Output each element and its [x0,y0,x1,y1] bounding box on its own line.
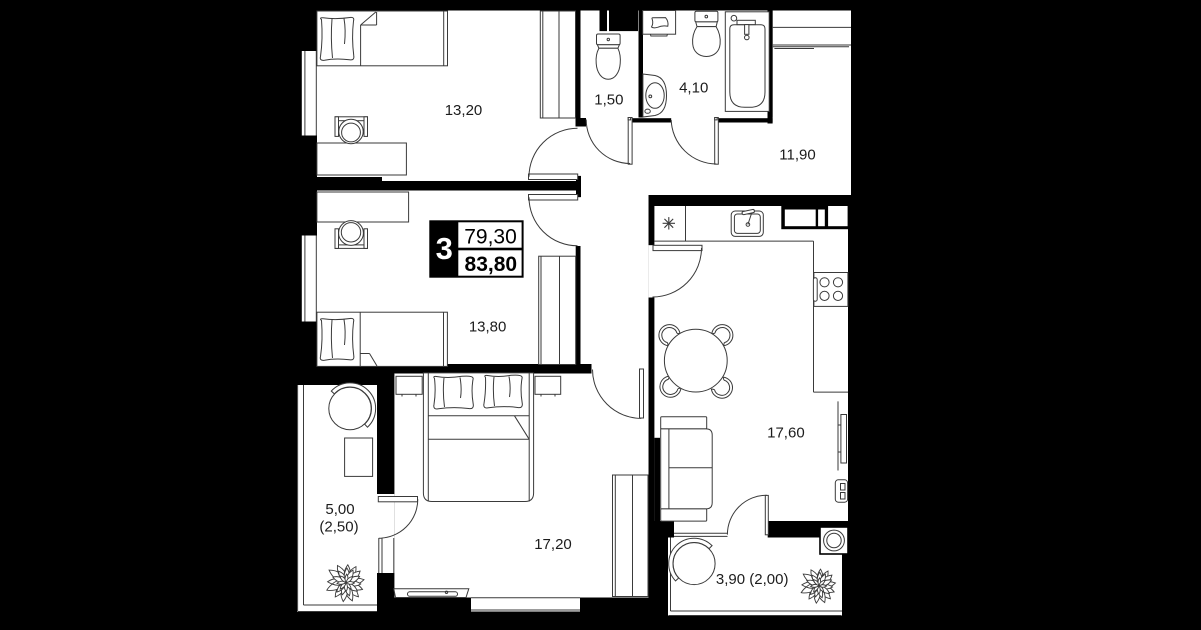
svg-text:13,80: 13,80 [469,319,507,336]
svg-text:17,60: 17,60 [767,425,805,442]
svg-text:17,20: 17,20 [534,536,572,553]
svg-text:5,00: 5,00 [325,501,354,518]
svg-text:(2,50): (2,50) [319,519,358,536]
svg-text:13,20: 13,20 [445,102,483,119]
svg-text:3: 3 [436,231,453,266]
svg-text:11,90: 11,90 [779,147,815,164]
svg-text:1,50: 1,50 [594,91,623,108]
svg-text:4,10: 4,10 [679,80,708,97]
svg-text:79,30: 79,30 [464,226,517,249]
svg-text:3,90 (2,00): 3,90 (2,00) [716,571,789,588]
svg-text:83,80: 83,80 [465,253,518,276]
